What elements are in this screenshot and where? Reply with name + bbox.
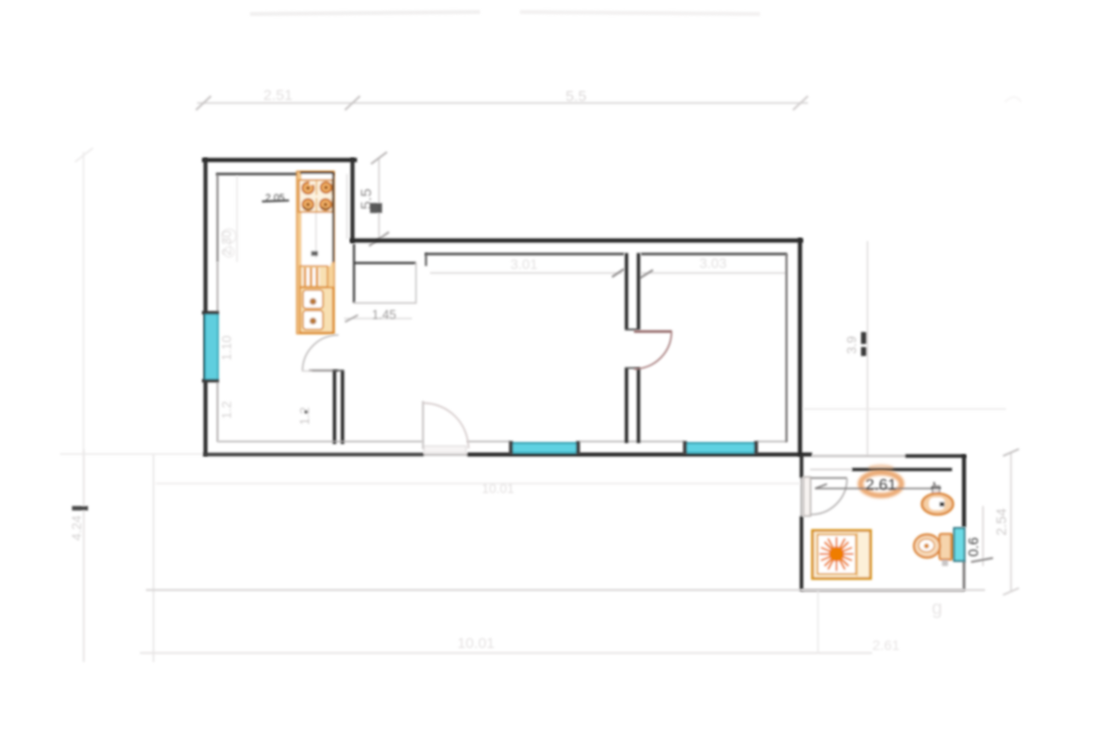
svg-text:2.61: 2.61 bbox=[865, 477, 896, 494]
svg-text:5.5: 5.5 bbox=[566, 88, 587, 105]
svg-text:2.30: 2.30 bbox=[219, 230, 234, 255]
svg-text:1.2: 1.2 bbox=[297, 407, 312, 425]
svg-text:2.61: 2.61 bbox=[872, 637, 899, 653]
svg-text:1.10: 1.10 bbox=[219, 335, 234, 360]
svg-text:2.54: 2.54 bbox=[993, 508, 1009, 535]
svg-text:10.01: 10.01 bbox=[482, 481, 515, 496]
svg-text:3.9: 3.9 bbox=[844, 336, 859, 354]
svg-text:3.01: 3.01 bbox=[510, 256, 537, 272]
svg-text:2.05: 2.05 bbox=[265, 193, 285, 204]
svg-text:2.51: 2.51 bbox=[263, 87, 292, 104]
svg-text:g: g bbox=[932, 598, 943, 619]
svg-text:3.03: 3.03 bbox=[699, 255, 726, 271]
svg-text:1.45: 1.45 bbox=[372, 308, 396, 322]
svg-text:4.24: 4.24 bbox=[69, 515, 84, 540]
svg-text:10.01: 10.01 bbox=[457, 635, 495, 652]
svg-text:1.2: 1.2 bbox=[219, 401, 234, 419]
svg-text:0.6: 0.6 bbox=[965, 537, 981, 557]
